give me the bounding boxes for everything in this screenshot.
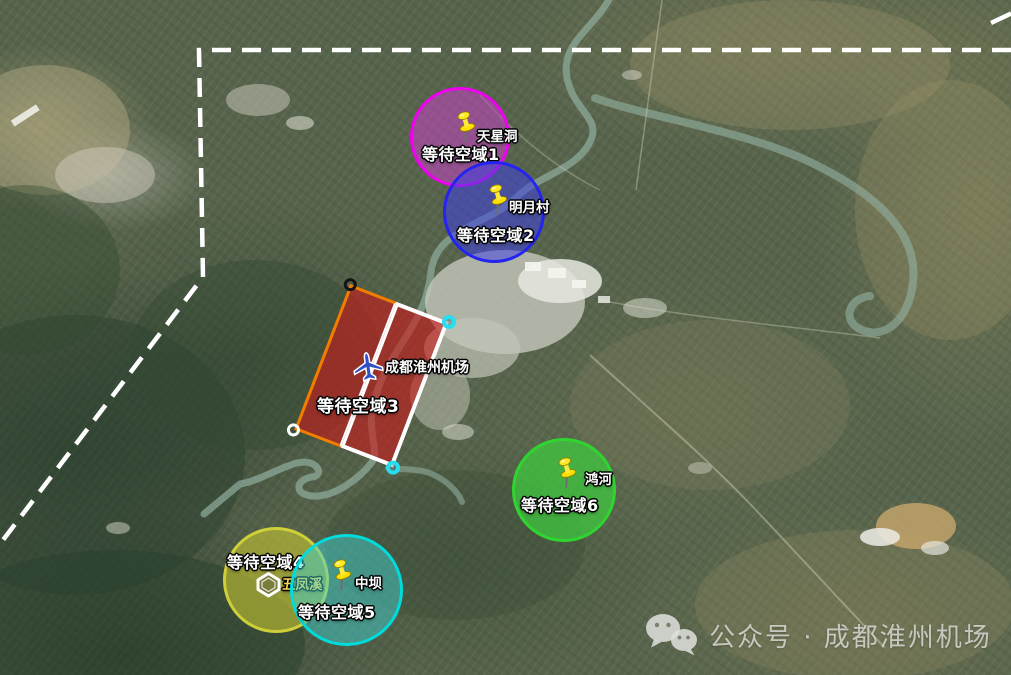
airplane-icon[interactable] [350,349,386,385]
watermark: 公众号 · 成都淮州机场 [644,612,992,658]
holding-area-3-label: 等待空域3 [317,398,399,417]
hexagon-icon[interactable] [255,571,282,598]
holding-area-6-circle[interactable] [512,438,616,542]
poi-zhongba-label: 中坝 [355,577,382,592]
poi-tianxingdong-label: 天星洞 [477,130,518,145]
map-canvas: 天星洞 等待空域1 明月村 等待空域2 成都淮州机场 等待空域3 等待空域4 五… [0,0,1011,675]
holding-area-6-label: 等待空域6 [521,497,599,515]
holding-area-5-label: 等待空域5 [298,604,376,622]
holding-area-5-circle[interactable] [290,534,403,646]
poi-airport-label: 成都淮州机场 [385,361,469,376]
wechat-icon [644,612,698,658]
pushpin-icon[interactable] [329,556,357,591]
pushpin-icon[interactable] [554,454,582,489]
holding-area-2-label: 等待空域2 [457,227,535,245]
boundary-dashed-line [0,0,1011,675]
poi-honghe-label: 鸿河 [585,473,612,488]
poi-mingyuecun-label: 明月村 [509,201,550,216]
watermark-text: 公众号 · 成都淮州机场 [709,617,992,654]
